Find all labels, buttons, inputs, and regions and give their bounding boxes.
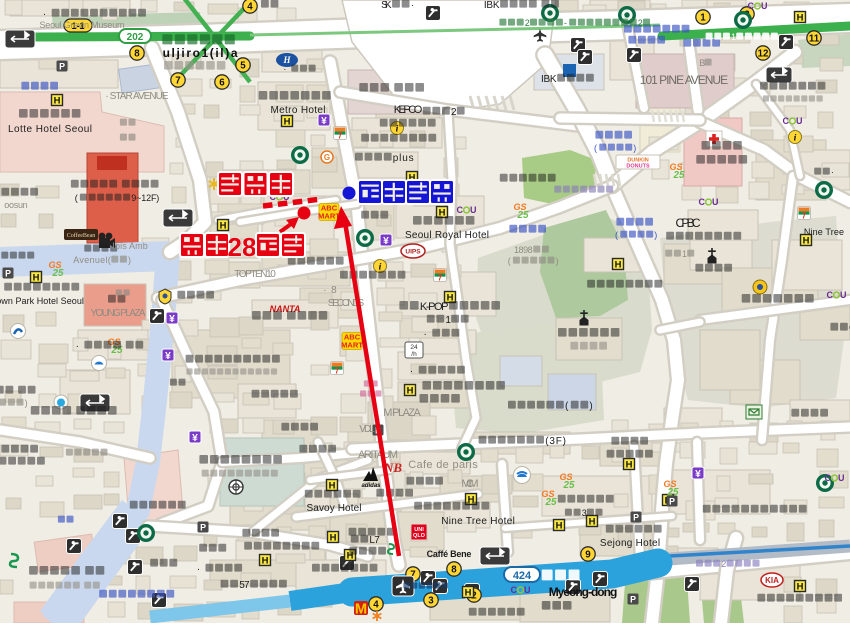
svg-text:H: H [54, 96, 61, 107]
svg-text:i: i [794, 133, 797, 144]
svg-text:(: ( [615, 230, 618, 240]
svg-text:¥: ¥ [169, 314, 175, 325]
svg-text:U: U [712, 197, 719, 207]
svg-text:28: 28 [228, 232, 257, 262]
svg-text:ARITAUM: ARITAUM [358, 449, 398, 461]
svg-text:5: 5 [240, 61, 246, 72]
svg-text:YOUNG PLAZA: YOUNG PLAZA [91, 308, 146, 319]
svg-text:7: 7 [338, 131, 343, 140]
svg-text:VDL: VDL [359, 424, 375, 435]
svg-text:H: H [615, 260, 622, 271]
svg-text:24: 24 [410, 344, 418, 351]
svg-text:· STAR AVENUE: · STAR AVENUE [105, 91, 169, 102]
svg-text:¥: ¥ [383, 236, 389, 247]
svg-text:Cafe de paris: Cafe de paris [408, 459, 478, 471]
svg-text:4: 4 [373, 600, 379, 611]
svg-text:·: · [76, 341, 79, 352]
svg-text:H: H [556, 521, 563, 532]
svg-text:4: 4 [247, 2, 253, 13]
svg-text:9: 9 [585, 550, 591, 561]
svg-text:7: 7 [802, 211, 807, 220]
svg-text:H: H [797, 13, 804, 24]
svg-text:Lotte Hotel Seoul: Lotte Hotel Seoul [8, 124, 92, 135]
svg-text:K-POP: K-POP [420, 301, 449, 313]
svg-text:QLO: QLO [413, 533, 426, 539]
svg-text:H: H [797, 582, 804, 593]
svg-text:C: C [748, 1, 755, 11]
svg-text:M PLAZA: M PLAZA [383, 407, 421, 419]
svg-text:CoffeeBean: CoffeeBean [67, 232, 96, 239]
svg-text:Nine Tree: Nine Tree [804, 227, 844, 237]
svg-text:57: 57 [239, 580, 250, 591]
svg-text:25: 25 [52, 268, 64, 279]
svg-text:H: H [284, 117, 291, 128]
svg-text:): ) [654, 230, 657, 240]
svg-text:25: 25 [673, 170, 685, 181]
svg-text:(3F): (3F) [545, 436, 566, 447]
svg-text:8: 8 [134, 49, 140, 60]
svg-text:8: 8 [451, 565, 457, 576]
svg-text:11: 11 [809, 34, 820, 45]
svg-text:6: 6 [219, 78, 225, 89]
svg-text:·: · [283, 64, 286, 74]
svg-text:H: H [465, 588, 472, 599]
svg-text:C: C [457, 205, 464, 215]
svg-text:CPBC: CPBC [676, 216, 701, 230]
svg-text:MCM: MCM [461, 478, 478, 490]
svg-text:P: P [633, 513, 639, 523]
svg-text:P: P [200, 523, 206, 533]
svg-text:C: C [825, 473, 832, 483]
svg-text:H: H [330, 533, 337, 544]
svg-text:Savoy Hotel: Savoy Hotel [307, 503, 362, 514]
svg-text:): ) [556, 256, 559, 266]
svg-text:Avenuel(: Avenuel( [73, 255, 110, 265]
svg-text:202: 202 [127, 32, 144, 43]
svg-text:U: U [838, 473, 845, 483]
svg-text:2: 2 [721, 559, 726, 569]
svg-text:B: B [699, 58, 705, 68]
svg-text:·: · [197, 564, 200, 575]
svg-text:Ibis Amb: Ibis Amb [112, 241, 148, 251]
svg-text:(: ( [508, 256, 511, 266]
svg-text:·: · [43, 9, 46, 20]
svg-text:12: 12 [758, 49, 769, 60]
svg-text:Seoul Grevin Museum: Seoul Grevin Museum [40, 20, 125, 30]
svg-text:H: H [626, 460, 633, 471]
svg-text:TOPTEN10: TOPTEN10 [234, 269, 276, 280]
svg-text:oosun: oosun [4, 200, 27, 210]
svg-text:U: U [761, 1, 768, 11]
svg-text:Nine Tree Hotel: Nine Tree Hotel [441, 516, 515, 527]
svg-text:¥: ¥ [165, 351, 171, 362]
svg-text:424: 424 [513, 570, 532, 582]
svg-text:P: P [669, 497, 675, 507]
svg-text:3: 3 [582, 508, 587, 518]
svg-text:· 8: · 8 [323, 285, 337, 296]
svg-text:G: G [324, 153, 330, 162]
svg-text:P: P [59, 62, 65, 72]
svg-text:3: 3 [428, 596, 434, 607]
svg-text:): ) [128, 255, 131, 265]
svg-text:): ) [25, 398, 28, 408]
svg-text:U: U [840, 290, 847, 300]
svg-text:25: 25 [545, 497, 557, 508]
svg-text:·: · [411, 0, 414, 11]
svg-text:7: 7 [175, 76, 180, 87]
svg-text:2: 2 [451, 107, 457, 118]
svg-text:C: C [511, 585, 518, 595]
svg-text:H: H [262, 556, 269, 567]
svg-text:25: 25 [517, 210, 529, 221]
svg-text:MART: MART [318, 212, 340, 221]
svg-text:¥: ¥ [321, 116, 327, 127]
svg-text:adidas: adidas [361, 483, 381, 489]
svg-text:): ) [589, 401, 592, 412]
svg-text:Myeong-dong: Myeong-dong [549, 585, 618, 599]
svg-text:9~12F): 9~12F) [131, 193, 159, 203]
svg-text:U: U [796, 116, 803, 126]
svg-text:KIA: KIA [765, 576, 779, 585]
svg-text:Caffé Bene: Caffé Bene [427, 549, 472, 559]
svg-text:P: P [630, 595, 636, 605]
svg-text:25: 25 [667, 487, 679, 498]
svg-text:1898: 1898 [514, 245, 533, 255]
svg-text:DONUTS: DONUTS [626, 164, 650, 170]
svg-text:H: H [407, 386, 414, 397]
svg-text:M: M [355, 601, 367, 617]
svg-text:/h: /h [411, 351, 417, 358]
svg-text:(: ( [75, 193, 78, 203]
svg-text:L7: L7 [369, 535, 380, 546]
svg-text:C: C [699, 197, 706, 207]
svg-text:C: C [783, 116, 790, 126]
svg-text:IBK: IBK [541, 74, 557, 85]
svg-text:7: 7 [335, 366, 340, 375]
svg-text:H: H [220, 221, 227, 232]
svg-text:1: 1 [445, 315, 451, 326]
svg-text:KEPCO: KEPCO [394, 104, 423, 116]
svg-text:): ) [633, 143, 636, 153]
svg-text:1: 1 [682, 249, 687, 259]
svg-text:H: H [33, 273, 40, 284]
svg-text:UIPS: UIPS [405, 249, 421, 256]
svg-text:H: H [589, 517, 596, 528]
svg-text:MART: MART [341, 341, 363, 350]
svg-text:1: 1 [731, 32, 736, 42]
svg-text:H: H [803, 236, 810, 247]
svg-text:P: P [5, 269, 11, 279]
svg-text:25: 25 [563, 480, 575, 491]
svg-text:plus: plus [393, 153, 414, 164]
svg-text:-: - [564, 18, 567, 28]
svg-text:Seoul Royal Hotel: Seoul Royal Hotel [405, 230, 489, 241]
svg-text:¥: ¥ [192, 433, 198, 444]
svg-text:101 PINE AVENUE: 101 PINE AVENUE [640, 73, 728, 87]
svg-text:own Park Hotel Seoul: own Park Hotel Seoul [0, 296, 84, 306]
svg-text:·: · [424, 329, 427, 340]
svg-text:2: 2 [638, 18, 643, 28]
svg-text:7: 7 [438, 273, 443, 282]
svg-text:IBK: IBK [484, 0, 500, 11]
svg-text:¥: ¥ [695, 469, 701, 480]
svg-text:Metro Hotel: Metro Hotel [271, 105, 326, 116]
svg-text:U: U [470, 205, 477, 215]
svg-text:SK: SK [381, 0, 392, 11]
svg-text:1: 1 [700, 13, 706, 24]
svg-text:·: · [831, 167, 834, 177]
svg-text:2: 2 [525, 18, 530, 28]
svg-text:Sejong Hotel: Sejong Hotel [600, 538, 660, 549]
svg-text:C: C [827, 290, 834, 300]
svg-text:·: · [410, 366, 413, 377]
svg-text:U: U [524, 585, 531, 595]
svg-text:(: ( [594, 143, 597, 153]
